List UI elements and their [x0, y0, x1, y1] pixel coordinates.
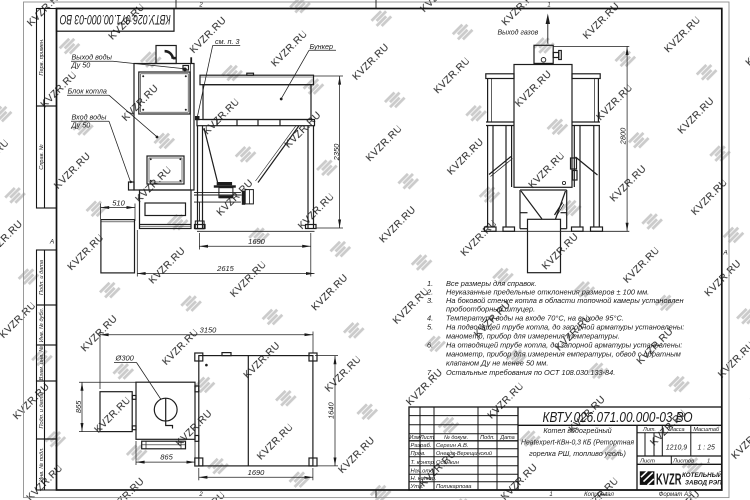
svg-text:1 : 25: 1 : 25 [697, 445, 715, 452]
svg-text:Инв. № дубл.: Инв. № дубл. [39, 308, 45, 342]
svg-text:Сергин А.В.: Сергин А.В. [436, 443, 468, 449]
svg-text:Heatexpert-КВн-0,3 КБ (Ретортн: Heatexpert-КВн-0,3 КБ (Ретортная [521, 438, 634, 447]
svg-text:3.: 3. [427, 296, 433, 305]
svg-text:1: 1 [707, 458, 710, 464]
svg-text:Температура воды на входе 70°С: Температура воды на входе 70°С, на выход… [446, 314, 624, 323]
svg-text:Т. контр.: Т. контр. [411, 460, 436, 466]
svg-text:Изм: Изм [409, 435, 419, 441]
svg-text:Блок котла: Блок котла [68, 87, 107, 96]
svg-text:Лит.: Лит. [642, 427, 656, 433]
svg-text:2: 2 [198, 492, 203, 498]
svg-text:865: 865 [74, 400, 83, 413]
svg-text:Разраб.: Разраб. [411, 443, 432, 449]
svg-text:1690: 1690 [248, 468, 266, 477]
svg-text:№ докум.: № докум. [444, 435, 468, 441]
svg-text:КВТУ.026.071.00.000-03 ВО: КВТУ.026.071.00.000-03 ВО [59, 12, 170, 27]
svg-text:1: 1 [547, 3, 550, 9]
svg-text:КОТЕЛЬНЫЙ: КОТЕЛЬНЫЙ [682, 471, 723, 479]
svg-text:Ду 50: Ду 50 [71, 121, 91, 130]
svg-text:2350: 2350 [332, 143, 341, 162]
svg-text:манометр, прибор для измерения: манометр, прибор для измерения температу… [446, 332, 620, 341]
svg-text:1: 1 [549, 492, 552, 498]
svg-text:2615: 2615 [216, 264, 235, 273]
svg-text:Формат А3: Формат А3 [659, 492, 692, 498]
svg-text:пробоотборный штуцер.: пробоотборный штуцер. [446, 305, 535, 314]
svg-text:Котел водогрейный: Котел водогрейный [543, 426, 611, 435]
svg-text:Пров.: Пров. [411, 451, 426, 457]
svg-text:510: 510 [112, 199, 125, 208]
svg-text:865: 865 [160, 453, 173, 462]
svg-text:5.: 5. [427, 323, 433, 332]
svg-text:4.: 4. [427, 314, 433, 323]
svg-text:Подп.: Подп. [480, 435, 495, 441]
svg-text:клапаном Ду не менее 50 мм.: клапаном Ду не менее 50 мм. [446, 359, 548, 368]
svg-text:А: А [49, 239, 54, 246]
svg-text:Масштаб: Масштаб [693, 427, 720, 433]
svg-text:3150: 3150 [200, 325, 218, 334]
svg-text:см. п. 3: см. п. 3 [215, 37, 239, 46]
svg-text:6.: 6. [427, 341, 433, 350]
svg-text:1690: 1690 [248, 237, 266, 246]
svg-text:Копировал: Копировал [584, 492, 614, 498]
svg-text:KVZR: KVZR [656, 471, 682, 488]
svg-text:Лист: Лист [639, 458, 655, 464]
svg-text:Поликарпова: Поликарпова [436, 484, 472, 490]
svg-text:2800: 2800 [618, 127, 627, 146]
svg-text:Инв. № подл.: Инв. № подл. [39, 447, 45, 482]
svg-text:1210,9: 1210,9 [666, 445, 688, 452]
svg-text:Масса: Масса [668, 427, 684, 433]
svg-text:Взам. инв. №: Взам. инв. № [39, 346, 45, 381]
svg-text:горелка РШ, топливо уголь): горелка РШ, топливо уголь) [529, 449, 626, 458]
svg-text:Подп. и дата: Подп. и дата [39, 393, 45, 428]
svg-text:Ду 50: Ду 50 [71, 61, 91, 70]
svg-text:На подводящей трубе котла, до: На подводящей трубе котла, до запорной а… [446, 323, 684, 332]
svg-text:7.: 7. [427, 368, 433, 377]
svg-text:1640: 1640 [327, 402, 336, 420]
svg-text:2: 2 [198, 3, 203, 9]
svg-text:А: А [722, 250, 727, 257]
svg-text:Лист: Лист [419, 435, 435, 441]
svg-text:Дата: Дата [499, 435, 515, 441]
svg-text:Нач.отд.: Нач.отд. [411, 468, 435, 474]
svg-text:манометр, прибор для измерения: манометр, прибор для измерения емператур… [446, 350, 681, 359]
svg-text:Перв. примен.: Перв. примен. [39, 38, 45, 75]
svg-text:ЗАВОД РЭП: ЗАВОД РЭП [685, 480, 722, 487]
svg-text:Остальные требования по ОСТ 10: Остальные требования по ОСТ 108.030.133-… [446, 368, 615, 377]
svg-text:Листов: Листов [672, 458, 694, 464]
svg-text:Бункер: Бункер [310, 42, 333, 51]
svg-text:Ø300: Ø300 [115, 354, 135, 363]
svg-text:Утв.: Утв. [410, 484, 424, 490]
svg-text:Подп. и дата: Подп. и дата [39, 260, 45, 295]
svg-text:Выход газов: Выход газов [498, 29, 539, 37]
svg-text:Онегов-Верещинский: Онегов-Верещинский [436, 450, 493, 457]
svg-text:На отводящей трубе котла, до з: На отводящей трубе котла, до запорной ар… [446, 341, 682, 350]
svg-text:КВТУ.026.071.00.000-03 ВО: КВТУ.026.071.00.000-03 ВО [543, 410, 693, 426]
svg-text:Осенкин: Осенкин [436, 460, 460, 466]
svg-text:Справ. №: Справ. № [39, 144, 45, 169]
svg-text:Н. контр.: Н. контр. [411, 476, 437, 482]
